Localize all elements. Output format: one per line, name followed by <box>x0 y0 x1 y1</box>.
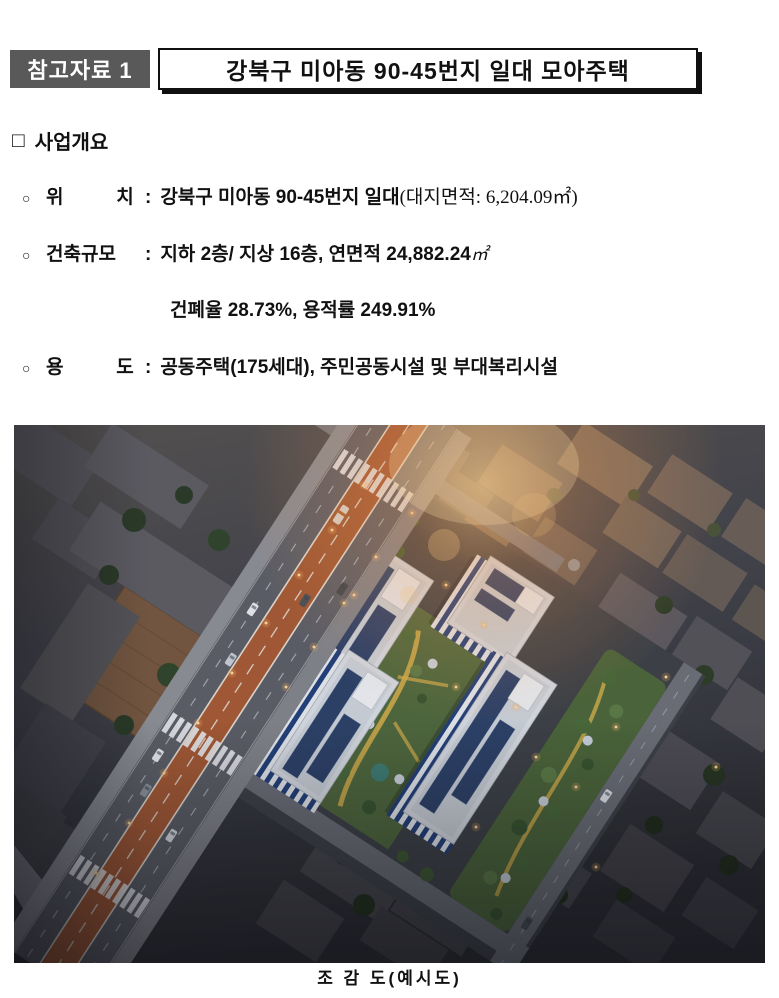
row-value-sub: (대지면적: 6,204.09㎡) <box>400 182 578 209</box>
overview-row-location: ○ 위 치 : 강북구 미아동 90-45번지 일대(대지면적: 6,204.0… <box>22 182 578 209</box>
square-bullet-icon: □ <box>12 130 25 151</box>
row-separator: : <box>145 244 151 266</box>
row-value: 공동주택(175세대), 주민공동시설 및 부대복리시설 <box>160 352 558 379</box>
vignette <box>14 425 765 963</box>
aerial-render-figure <box>14 425 765 963</box>
row-label: 건축규모 <box>46 239 143 266</box>
figure-caption: 조 감 도(예시도) <box>14 964 765 989</box>
circle-bullet-icon: ○ <box>22 247 46 263</box>
row-separator: : <box>145 187 151 209</box>
row-label: 위 치 <box>46 182 143 209</box>
circle-bullet-icon: ○ <box>22 360 46 376</box>
row-label: 용 도 <box>46 352 143 379</box>
overview-row-scale: ○ 건축규모 : 지하 2층/ 지상 16층, 연면적 24,882.24㎡ <box>22 239 488 266</box>
overview-row-use: ○ 용 도 : 공동주택(175세대), 주민공동시설 및 부대복리시설 <box>22 352 558 379</box>
section-heading-label: 사업개요 <box>35 126 109 155</box>
area-unit: ㎡ <box>471 240 488 265</box>
overview-row-scale-cont: 건폐율 28.73%, 용적률 249.91% <box>170 295 435 322</box>
row-separator: : <box>145 357 151 379</box>
document-page: 참고자료 1 강북구 미아동 90-45번지 일대 모아주택 □ 사업개요 ○ … <box>0 0 779 998</box>
row-value: 지하 2층/ 지상 16층, 연면적 24,882.24 <box>160 239 471 266</box>
page-title: 강북구 미아동 90-45번지 일대 모아주택 <box>158 48 698 90</box>
section-heading: □ 사업개요 <box>12 126 108 155</box>
circle-bullet-icon: ○ <box>22 190 46 206</box>
aerial-photo <box>14 425 765 963</box>
reference-tag: 참고자료 1 <box>10 50 150 88</box>
row-value: 강북구 미아동 90-45번지 일대 <box>160 182 399 209</box>
